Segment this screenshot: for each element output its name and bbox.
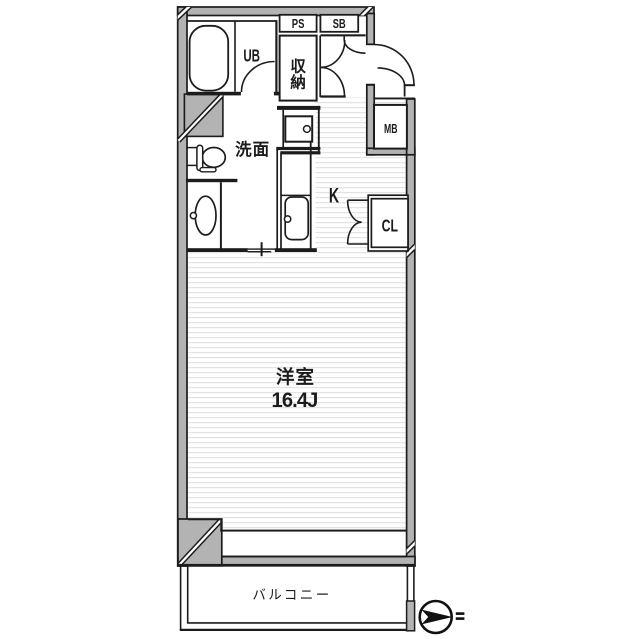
svg-text:SB: SB [333, 18, 346, 32]
svg-text:洗面: 洗面 [235, 139, 270, 159]
svg-text:収: 収 [290, 58, 306, 76]
svg-text:バルコニー: バルコニー [252, 587, 331, 602]
svg-text:MB: MB [384, 122, 398, 136]
svg-text:納: 納 [290, 73, 306, 92]
svg-text:16.4J: 16.4J [272, 389, 318, 413]
svg-text:UB: UB [243, 47, 260, 66]
svg-text:PS: PS [292, 18, 305, 32]
svg-text:K: K [329, 183, 339, 207]
svg-text:CL: CL [382, 216, 398, 236]
svg-text:洋室: 洋室 [276, 367, 315, 388]
